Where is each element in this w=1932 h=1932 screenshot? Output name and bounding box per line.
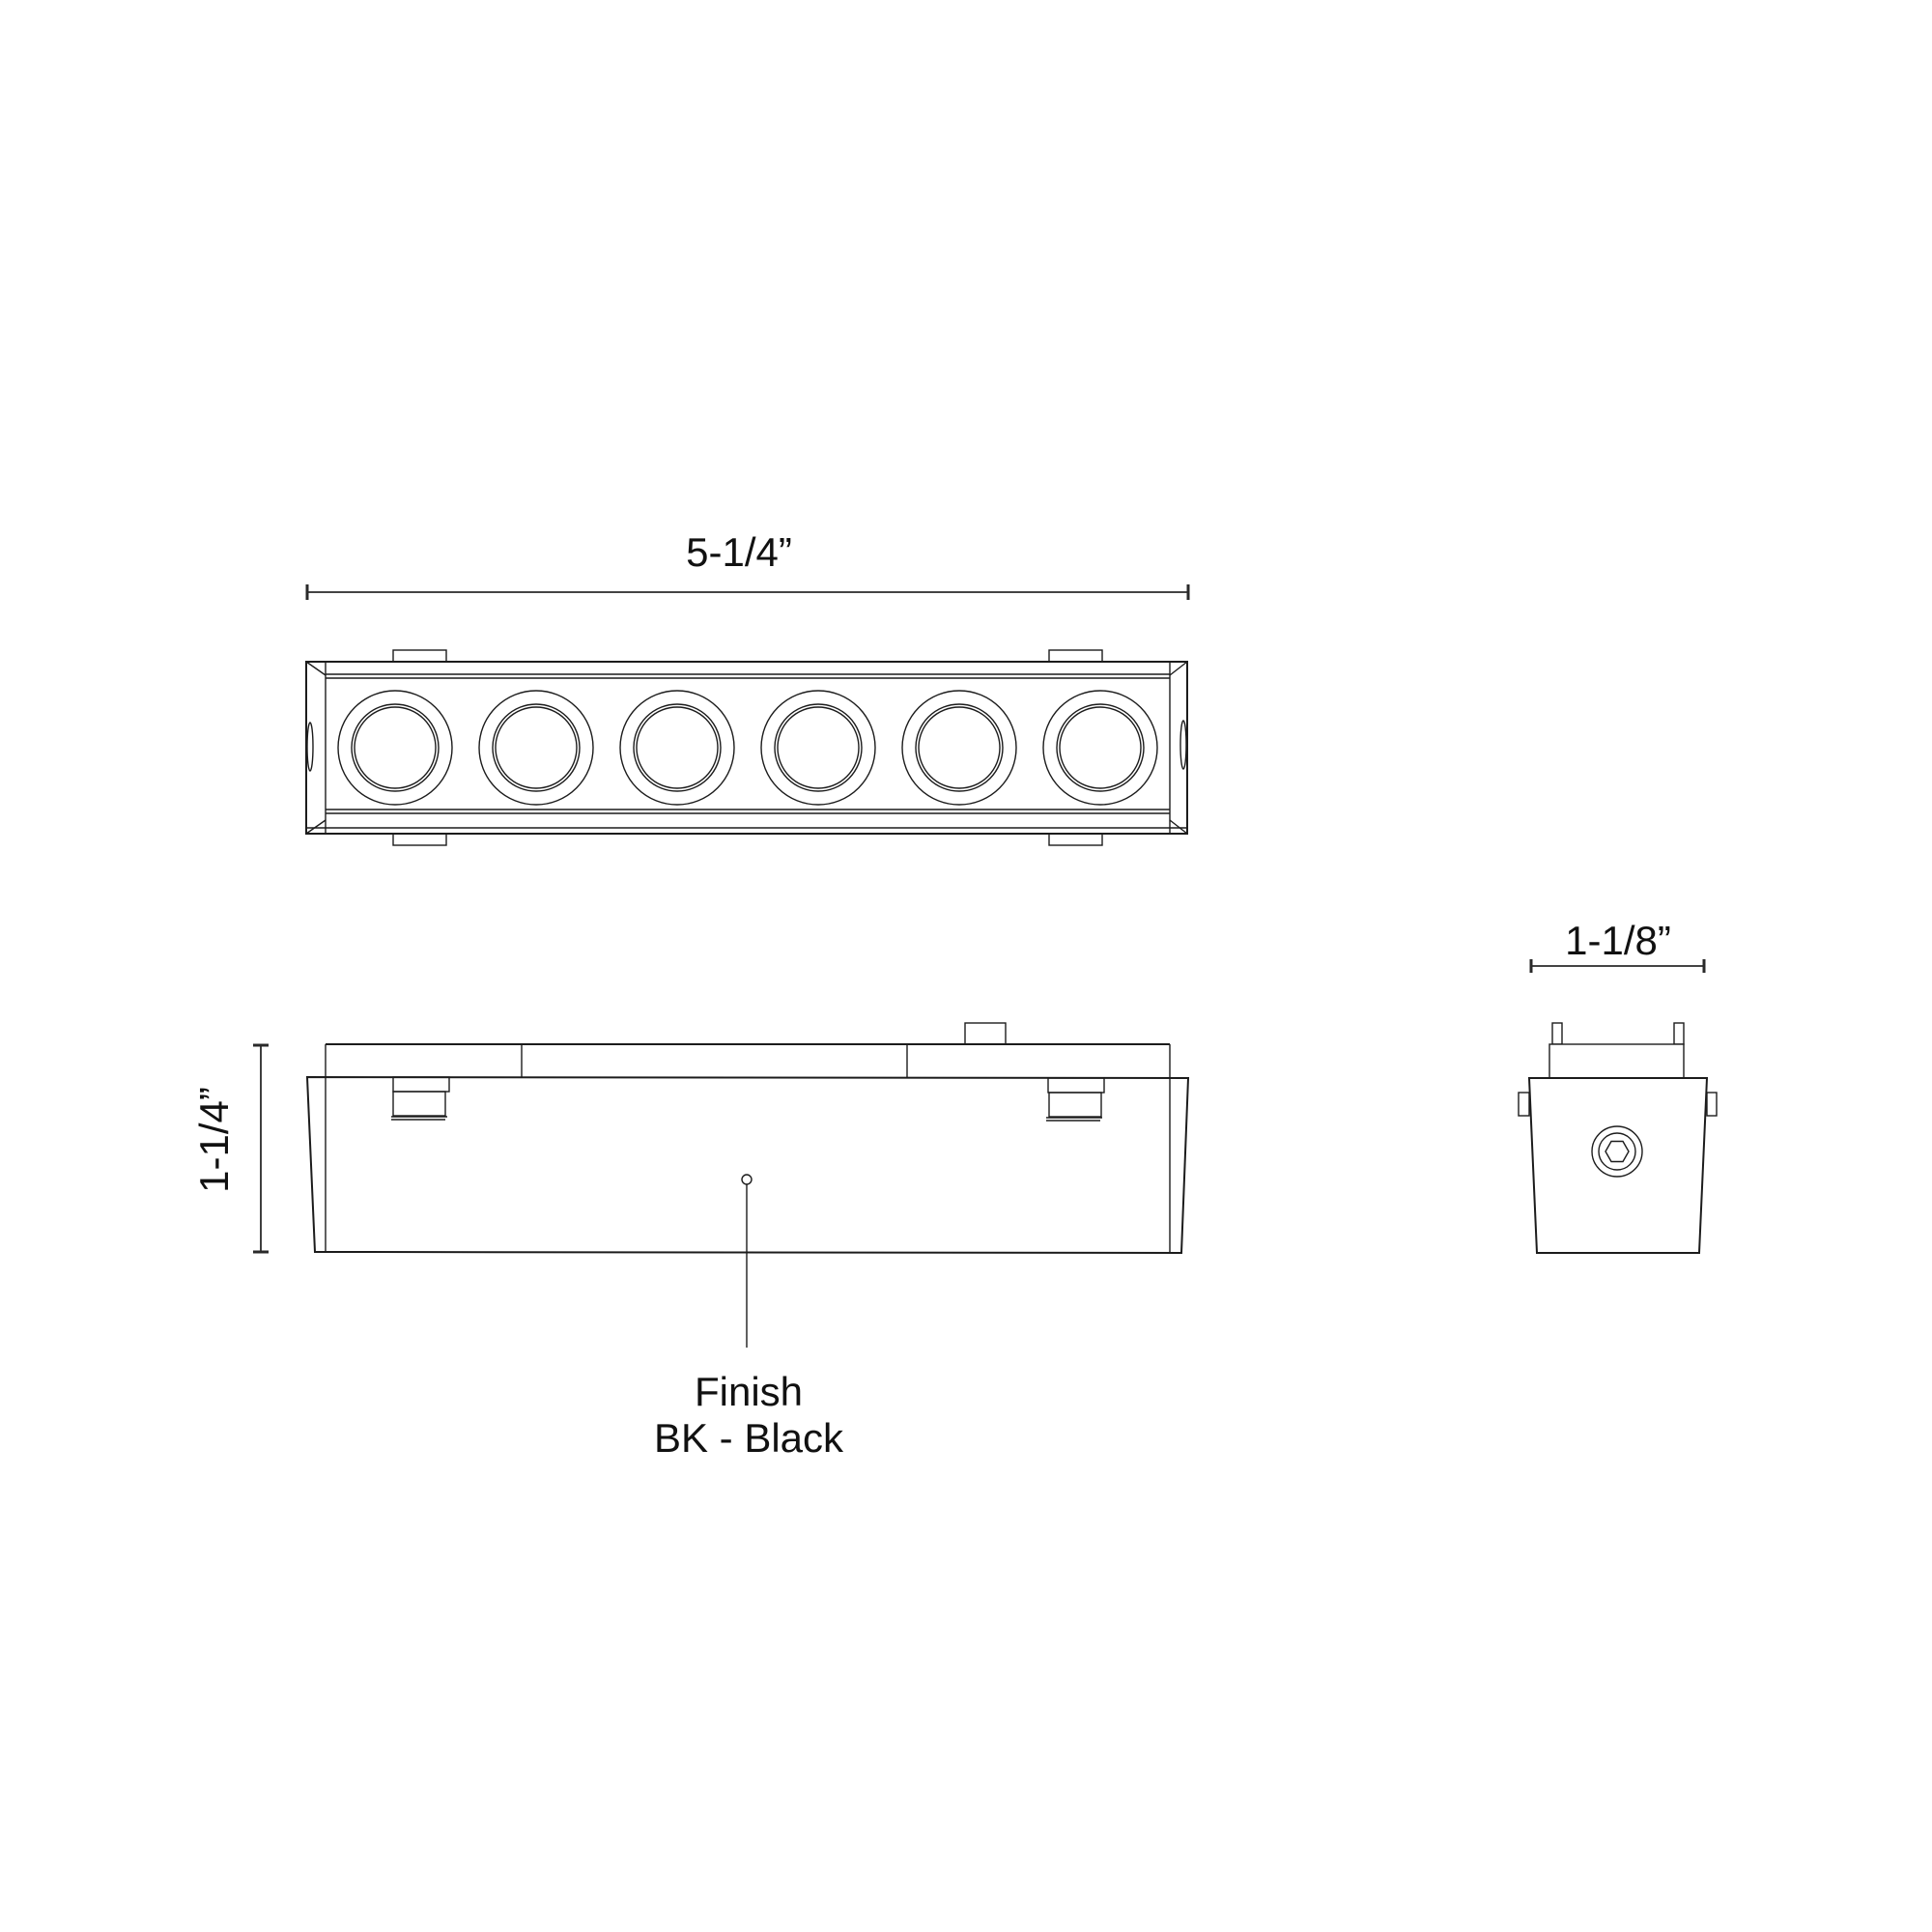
end-view: 1-1/8” bbox=[1519, 918, 1717, 1253]
body-outline bbox=[1529, 1078, 1707, 1253]
contact-pin-left bbox=[1552, 1023, 1562, 1044]
end-view-body bbox=[1529, 1078, 1707, 1253]
mounting-tab bbox=[1049, 650, 1102, 662]
front-view-height-dimension: 1-1/4” bbox=[191, 1045, 269, 1252]
front-view-track-strip bbox=[326, 1023, 1170, 1077]
mounting-tab bbox=[393, 834, 446, 845]
finish-note-value: BK - Black bbox=[654, 1415, 844, 1461]
side-tab-left bbox=[1519, 1093, 1529, 1116]
contact-pin-right bbox=[1674, 1023, 1684, 1044]
finish-note-title: Finish bbox=[695, 1369, 803, 1414]
end-view-track-connector bbox=[1549, 1023, 1684, 1078]
front-height-dimension-label: 1-1/4” bbox=[191, 1087, 237, 1193]
connector-block bbox=[1549, 1044, 1684, 1078]
front-view: 1-1/4” bbox=[191, 1023, 1188, 1461]
end-depth-dimension-label: 1-1/8” bbox=[1565, 918, 1671, 963]
end-view-depth-dimension: 1-1/8” bbox=[1531, 918, 1704, 973]
top-width-dimension-label: 5-1/4” bbox=[686, 529, 792, 575]
drawing-canvas: 5-1/4” bbox=[0, 0, 1932, 1932]
front-view-body bbox=[307, 1044, 1188, 1253]
mounting-tab bbox=[1049, 834, 1102, 845]
track-tab bbox=[965, 1023, 1006, 1044]
mounting-tab bbox=[393, 650, 446, 662]
body-outline bbox=[307, 1077, 1188, 1253]
technical-drawing-page: 5-1/4” bbox=[0, 0, 1932, 1932]
side-tab-right bbox=[1707, 1093, 1717, 1116]
top-view-width-dimension: 5-1/4” bbox=[307, 529, 1188, 600]
top-view: 5-1/4” bbox=[306, 529, 1188, 845]
